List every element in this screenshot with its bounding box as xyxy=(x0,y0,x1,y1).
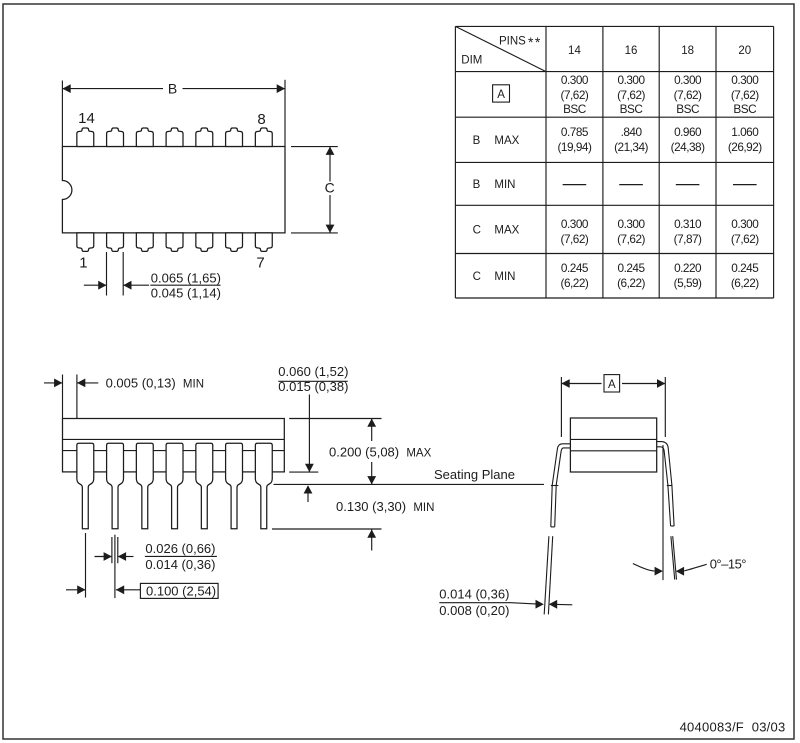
svg-text:MAX: MAX xyxy=(494,135,519,147)
svg-text:DIM: DIM xyxy=(461,54,482,66)
svg-text:0.310: 0.310 xyxy=(674,217,702,231)
svg-text:4040083/F 03/03: 4040083/F 03/03 xyxy=(680,720,786,735)
svg-text:0.300: 0.300 xyxy=(674,73,702,87)
svg-text:(6,22): (6,22) xyxy=(561,276,589,290)
svg-text:(5,59): (5,59) xyxy=(674,276,702,290)
svg-text:0.245: 0.245 xyxy=(731,261,759,275)
svg-text:B: B xyxy=(168,80,177,96)
svg-text:BSC: BSC xyxy=(733,102,757,116)
svg-text:14: 14 xyxy=(78,110,95,127)
svg-text:0.014 (0,36): 0.014 (0,36) xyxy=(145,557,215,572)
svg-text:(7,62): (7,62) xyxy=(731,232,759,246)
svg-text:0.026 (0,66): 0.026 (0,66) xyxy=(145,541,215,556)
svg-text:0.015 (0,38): 0.015 (0,38) xyxy=(278,379,348,394)
svg-text:BSC: BSC xyxy=(676,102,700,116)
svg-text:0.130 (3,30) MIN: 0.130 (3,30) MIN xyxy=(336,499,434,514)
svg-text:0.300: 0.300 xyxy=(731,73,759,87)
svg-text:MIN: MIN xyxy=(494,271,515,283)
svg-text:0.300: 0.300 xyxy=(731,217,759,231)
svg-text:C: C xyxy=(473,225,481,237)
svg-text:1.060: 1.060 xyxy=(731,125,759,139)
svg-text:A: A xyxy=(497,89,505,101)
svg-text:Seating Plane: Seating Plane xyxy=(434,467,515,482)
svg-text:PINS: PINS xyxy=(499,36,526,48)
svg-text:(7,62): (7,62) xyxy=(617,232,645,246)
svg-text:(21,34): (21,34) xyxy=(614,140,648,154)
svg-text:MIN: MIN xyxy=(494,179,515,191)
svg-text:0.300: 0.300 xyxy=(618,73,646,87)
svg-text:0.200 (5,08) MAX: 0.200 (5,08) MAX xyxy=(329,445,432,460)
svg-text:7: 7 xyxy=(256,255,264,272)
svg-text:(7,62): (7,62) xyxy=(561,232,589,246)
svg-text:0.245: 0.245 xyxy=(561,261,589,275)
svg-text:0.060 (1,52): 0.060 (1,52) xyxy=(278,364,348,379)
svg-text:(7,62): (7,62) xyxy=(561,88,589,102)
svg-text:0.300: 0.300 xyxy=(561,73,589,87)
svg-text:MAX: MAX xyxy=(494,225,519,237)
svg-text:0.785: 0.785 xyxy=(561,125,589,139)
svg-text:.840: .840 xyxy=(621,125,643,139)
svg-text:20: 20 xyxy=(738,45,751,57)
svg-text:BSC: BSC xyxy=(563,102,587,116)
svg-text:0.220: 0.220 xyxy=(674,261,702,275)
svg-text:(7,62): (7,62) xyxy=(617,88,645,102)
svg-text:C: C xyxy=(473,271,481,283)
svg-text:(7,62): (7,62) xyxy=(674,88,702,102)
svg-text:(7,62): (7,62) xyxy=(731,88,759,102)
svg-text:0.300: 0.300 xyxy=(618,217,646,231)
svg-text:0.960: 0.960 xyxy=(674,125,702,139)
svg-text:(6,22): (6,22) xyxy=(617,276,645,290)
svg-text:8: 8 xyxy=(257,111,265,128)
svg-text:1: 1 xyxy=(79,255,87,272)
svg-text:0.045 (1,14): 0.045 (1,14) xyxy=(151,286,221,301)
svg-text:0°–15°: 0°–15° xyxy=(710,557,747,572)
svg-text:(19,94): (19,94) xyxy=(558,140,592,154)
svg-text:0.100 (2,54): 0.100 (2,54) xyxy=(146,583,216,598)
svg-text:0.245: 0.245 xyxy=(618,261,646,275)
svg-text:B: B xyxy=(473,179,481,191)
svg-text:(7,87): (7,87) xyxy=(674,232,702,246)
svg-text:0.014 (0,36): 0.014 (0,36) xyxy=(439,587,509,602)
svg-text:BSC: BSC xyxy=(620,102,644,116)
svg-text:18: 18 xyxy=(681,45,694,57)
svg-text:C: C xyxy=(325,180,335,196)
svg-text:14: 14 xyxy=(568,45,581,57)
svg-text:(24,38): (24,38) xyxy=(671,140,705,154)
svg-text:0.005 (0,13) MIN: 0.005 (0,13) MIN xyxy=(106,376,204,391)
svg-text:16: 16 xyxy=(625,45,638,57)
svg-text:(26,92): (26,92) xyxy=(728,140,762,154)
svg-text:0.008 (0,20): 0.008 (0,20) xyxy=(439,603,509,618)
svg-text:(6,22): (6,22) xyxy=(731,276,759,290)
svg-text:A: A xyxy=(608,379,616,391)
svg-text:B: B xyxy=(473,135,481,147)
svg-text:**: ** xyxy=(528,34,542,50)
svg-text:0.300: 0.300 xyxy=(561,217,589,231)
svg-text:0.065 (1,65): 0.065 (1,65) xyxy=(151,270,221,285)
